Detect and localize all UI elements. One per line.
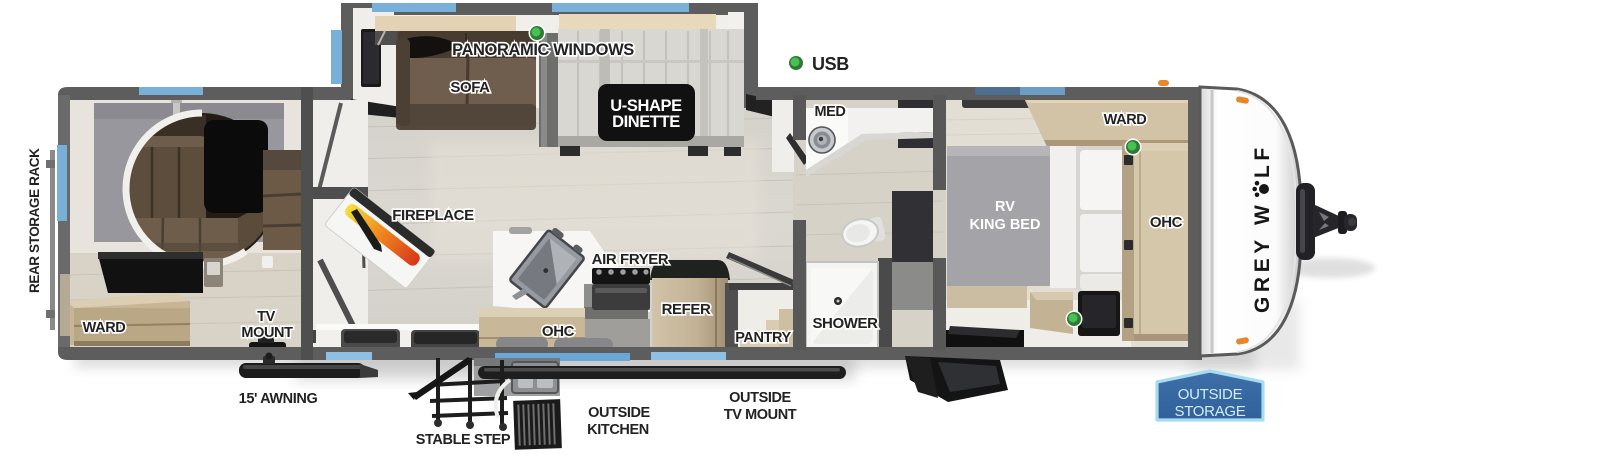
svg-text:TV: TV	[257, 309, 275, 325]
svg-text:PANTRY: PANTRY	[735, 330, 791, 346]
svg-text:OHC: OHC	[542, 323, 575, 340]
svg-text:FIREPLACE: FIREPLACE	[392, 207, 474, 224]
svg-text:RV: RV	[995, 199, 1015, 215]
svg-text:KITCHEN: KITCHEN	[587, 422, 649, 438]
svg-text:OUTSIDE: OUTSIDE	[729, 390, 791, 406]
svg-text:SHOWER: SHOWER	[812, 315, 878, 332]
svg-text:PANORAMIC WINDOWS: PANORAMIC WINDOWS	[452, 41, 634, 59]
svg-text:MED: MED	[814, 104, 845, 120]
svg-text:KING BED: KING BED	[970, 217, 1041, 233]
svg-text:DINETTE: DINETTE	[612, 113, 680, 131]
svg-text:REAR STORAGE RACK: REAR STORAGE RACK	[27, 148, 42, 293]
svg-text:15' AWNING: 15' AWNING	[239, 391, 318, 407]
svg-text:MOUNT: MOUNT	[241, 325, 293, 341]
svg-text:WARD: WARD	[83, 320, 126, 336]
svg-text:GREY W: GREY W	[1251, 201, 1274, 313]
svg-text:TV MOUNT: TV MOUNT	[724, 407, 797, 423]
svg-text:REFER: REFER	[662, 301, 711, 318]
svg-text:WARD: WARD	[1104, 112, 1147, 128]
svg-text:SOFA: SOFA	[450, 79, 490, 96]
svg-text:LF: LF	[1251, 143, 1274, 178]
svg-text:STABLE STEP: STABLE STEP	[416, 432, 511, 448]
svg-text:AIR FRYER: AIR FRYER	[592, 251, 669, 268]
svg-text:STORAGE: STORAGE	[1175, 403, 1246, 420]
svg-text:USB: USB	[812, 54, 849, 74]
svg-text:OUTSIDE: OUTSIDE	[1178, 386, 1243, 403]
svg-text:OHC: OHC	[1150, 214, 1183, 231]
svg-text:OUTSIDE: OUTSIDE	[588, 405, 650, 421]
